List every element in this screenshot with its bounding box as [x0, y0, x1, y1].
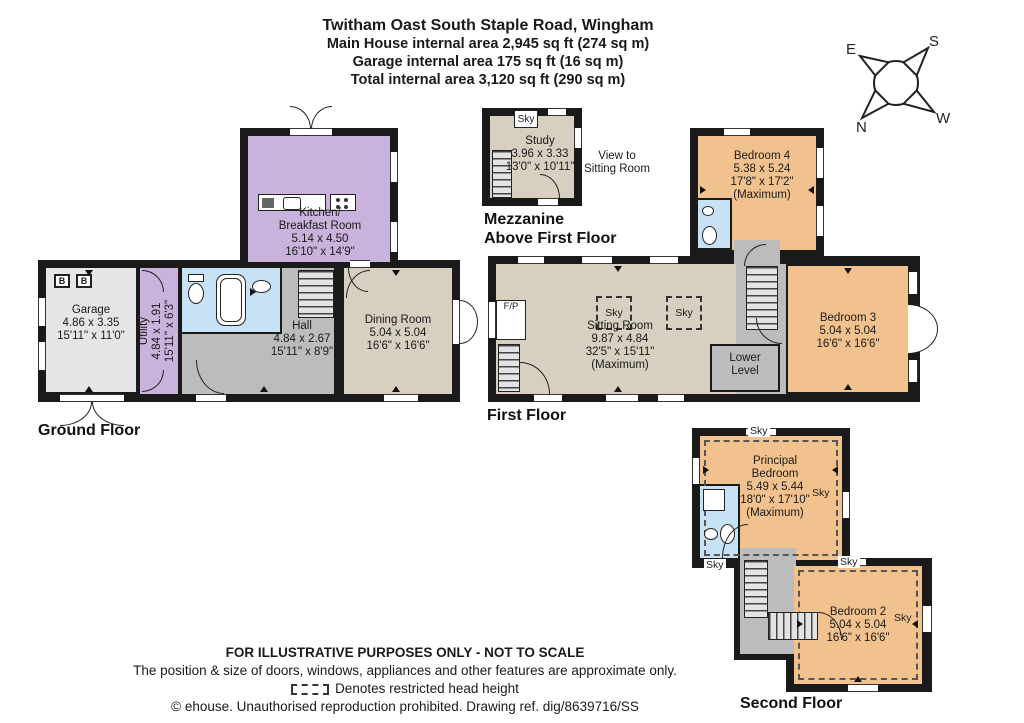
restricted-head-height-icon: [291, 684, 329, 695]
window: [534, 394, 562, 402]
skylight-label: Sky: [748, 425, 770, 437]
garage-label: Garage 4.86 x 3.35 15'11" x 11'0": [46, 304, 136, 343]
bedroom3-label: Bedroom 3 5.04 x 5.04 16'6" x 16'6": [788, 312, 908, 351]
bathtub-icon: [216, 274, 246, 326]
measure-tick: [854, 676, 862, 682]
window: [390, 152, 398, 182]
french-door-arc: [460, 322, 478, 344]
measure-tick: [250, 288, 256, 296]
window: [384, 394, 418, 402]
window: [842, 492, 850, 518]
dining-label: Dining Room 5.04 x 5.04 16'6" x 16'6": [344, 314, 452, 353]
main-house-area: Main House internal area 2,945 sq ft (27…: [228, 35, 748, 53]
window: [650, 256, 678, 264]
skylight-icon: Sky: [514, 110, 538, 128]
skylight-label: Sky: [704, 559, 726, 571]
window: [606, 394, 638, 402]
door-arc: [290, 106, 311, 129]
door-gap: [60, 394, 124, 402]
second-floor-label: Second Floor: [740, 694, 842, 713]
measure-tick: [700, 186, 706, 194]
stairs-icon: [744, 560, 768, 618]
door-gap: [350, 260, 370, 268]
page-title: Twitham Oast South Staple Road, Wingham: [228, 16, 748, 35]
window: [548, 108, 566, 116]
measure-tick: [85, 386, 93, 392]
measure-tick: [614, 266, 622, 272]
total-area: Total internal area 3,120 sq ft (290 sq …: [228, 71, 748, 89]
window: [658, 394, 684, 402]
compass-w-label: W: [936, 110, 951, 127]
door-gap: [538, 198, 558, 206]
hall-label: Hall 4.84 x 2.67 15'11" x 8'9": [252, 320, 352, 359]
window: [724, 128, 750, 136]
toilet-icon: [188, 283, 204, 304]
measure-tick: [392, 270, 400, 276]
disclaimer-line2: The position & size of doors, windows, a…: [95, 662, 715, 680]
measure-tick: [85, 270, 93, 276]
toilet-icon: [702, 226, 717, 245]
measure-tick: [832, 466, 838, 474]
hob-burners-icon: [336, 198, 340, 202]
sitting-room-label: Sitting Room 9.87 x 4.84 32'5" x 15'11" …: [545, 320, 695, 372]
measure-tick: [844, 268, 852, 274]
window: [816, 206, 824, 236]
window: [582, 256, 612, 264]
skylight-label: Sky: [894, 612, 912, 624]
boiler-icon: B: [76, 274, 92, 288]
window: [692, 458, 700, 484]
first-floor-label: First Floor: [487, 406, 566, 425]
door-arc: [311, 106, 332, 129]
ground-floor-label: Ground Floor: [38, 421, 140, 440]
study-label: Study 3.96 x 3.33 13'0" x 10'11": [502, 135, 578, 174]
view-note: View to Sitting Room: [572, 150, 662, 176]
disclaimer-line4: © ehouse. Unauthorised reproduction proh…: [95, 698, 715, 716]
measure-tick: [912, 620, 918, 628]
disclaimer-block: FOR ILLUSTRATIVE PURPOSES ONLY - NOT TO …: [95, 644, 715, 716]
window: [38, 342, 46, 370]
window: [518, 256, 544, 264]
compass-e-label: E: [846, 41, 856, 58]
garage-area: Garage internal area 175 sq ft (16 sq m): [228, 53, 748, 71]
measure-tick: [392, 386, 400, 392]
lower-level-label: Lower Level: [710, 352, 780, 378]
sink-icon: [702, 206, 714, 216]
bedroom4-label: Bedroom 4 5.38 x 5.24 17'8" x 17'2" (Max…: [706, 150, 818, 202]
stairs-icon: [498, 344, 520, 392]
mezzanine-floor-label: Mezzanine Above First Floor: [484, 210, 616, 248]
measure-tick: [614, 386, 622, 392]
fireplace-icon: F/P: [496, 300, 526, 340]
compass-s-label: S: [929, 33, 939, 50]
measure-tick: [703, 466, 709, 474]
window: [922, 606, 932, 632]
door-gap: [290, 128, 332, 136]
skylight-label: Sky: [812, 487, 830, 499]
door-arc: [908, 304, 938, 354]
floorplan-canvas: Twitham Oast South Staple Road, Wingham …: [0, 0, 1024, 723]
disclaimer-line1: FOR ILLUSTRATIVE PURPOSES ONLY - NOT TO …: [95, 644, 715, 662]
french-door-arc: [460, 300, 478, 322]
window: [390, 222, 398, 252]
boiler-icon: B: [54, 274, 70, 288]
compass-icon: S E W N: [836, 26, 966, 138]
hall-stairs-icon: [298, 270, 334, 318]
window: [848, 684, 878, 692]
door-gap: [452, 300, 460, 344]
window: [38, 298, 46, 326]
kitchen-label: Kitchen/ Breakfast Room 5.14 x 4.50 16'1…: [250, 207, 390, 259]
measure-tick: [808, 186, 814, 194]
window: [908, 272, 918, 294]
disclaimer-line3: Denotes restricted head height: [95, 680, 715, 698]
measure-tick: [260, 386, 268, 392]
measure-tick: [844, 384, 852, 390]
measure-tick: [797, 620, 803, 628]
utility-label: Utility 4.84 x 1.91 15'11" x 6'3": [138, 271, 180, 391]
plan-title-block: Twitham Oast South Staple Road, Wingham …: [228, 16, 748, 89]
compass-n-label: N: [856, 119, 867, 136]
door-gap: [196, 394, 226, 402]
sink-icon: [704, 528, 718, 540]
skylight-label: Sky: [838, 556, 860, 568]
fireplace-gap: [488, 302, 496, 338]
toilet-cistern-icon: [188, 274, 204, 282]
window: [908, 360, 918, 382]
